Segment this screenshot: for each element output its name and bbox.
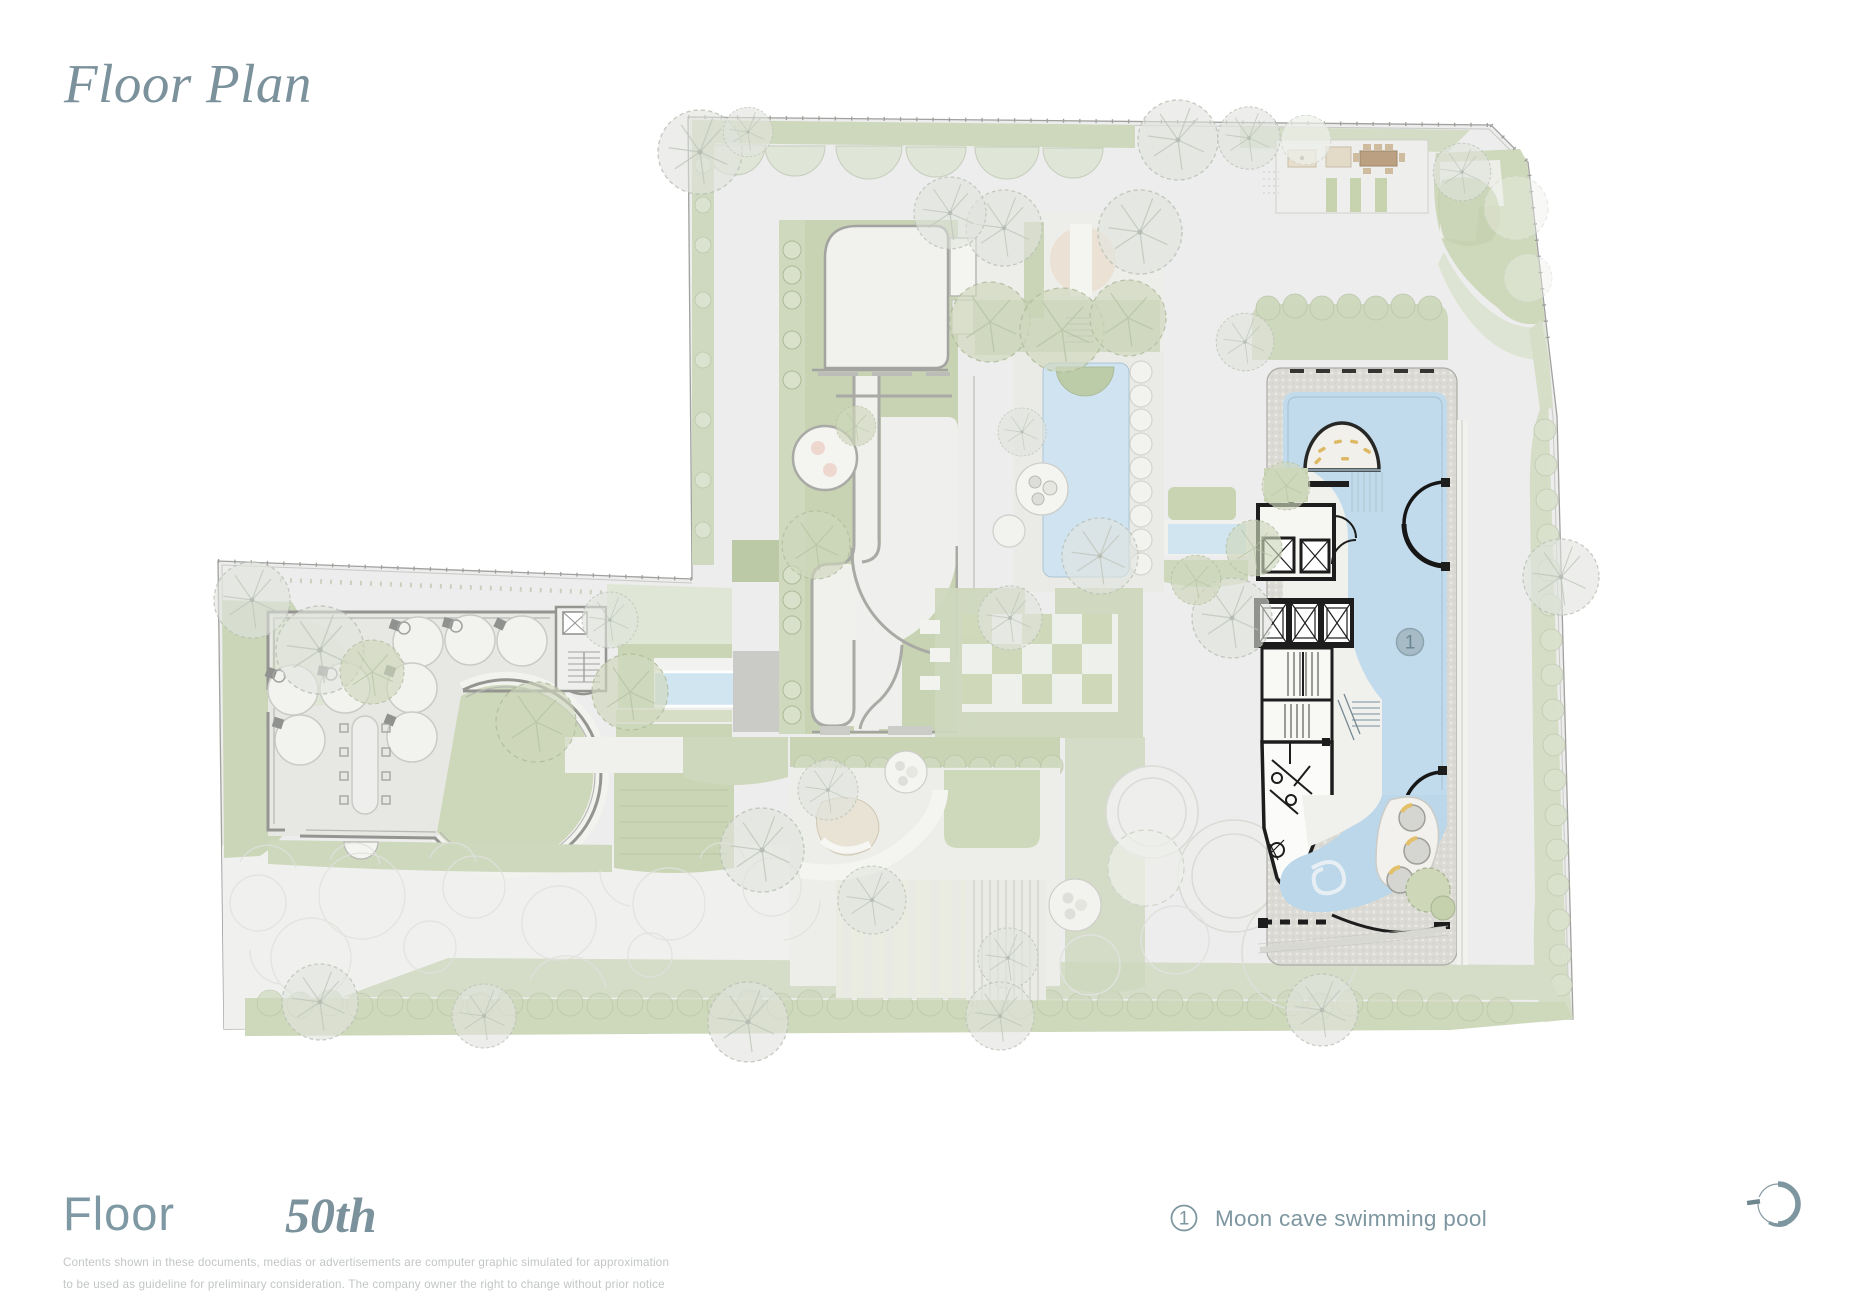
svg-text:50th: 50th (285, 1187, 377, 1243)
svg-text:Floor: Floor (63, 1187, 175, 1240)
svg-text:Moon cave swimming pool: Moon cave swimming pool (1215, 1206, 1487, 1231)
svg-text:1: 1 (1179, 1209, 1190, 1230)
svg-text:to be used as guideline for pr: to be used as guideline for preliminary … (63, 1278, 665, 1291)
svg-text:Contents shown in these docum: Contents shown in these documents, media… (63, 1256, 669, 1269)
svg-text:Floor Plan: Floor Plan (63, 53, 312, 114)
